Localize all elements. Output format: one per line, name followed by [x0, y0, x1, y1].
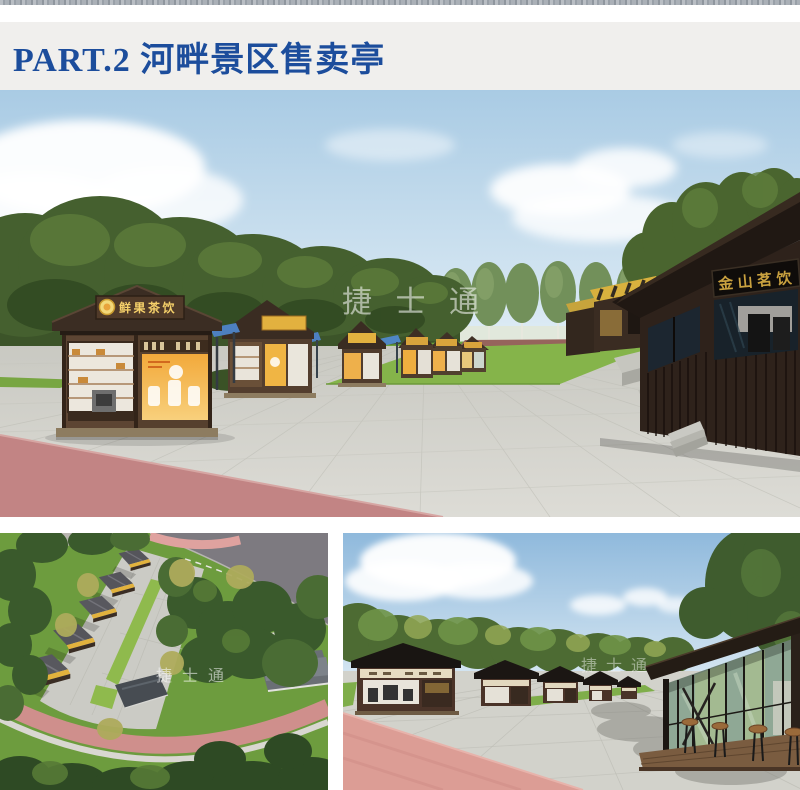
- page-title: PART.2 河畔景区售卖亭: [13, 32, 385, 81]
- plaza-render-image: 捷士通: [343, 533, 800, 790]
- main-render-image: 鲜果茶饮: [0, 90, 800, 517]
- kiosk-1-sign-text: 鲜果茶饮: [119, 300, 177, 315]
- watermark-main: 捷 士 通: [342, 286, 487, 319]
- page-top-texture-strip: [0, 0, 800, 5]
- watermark-aerial: 捷 士 通: [156, 667, 227, 685]
- bottom-image-row: 捷 士 通: [0, 533, 800, 790]
- image-gap: [328, 533, 343, 790]
- aerial-render-image: 捷 士 通: [0, 533, 328, 790]
- kiosk-1-signboard: 鲜果茶饮: [96, 296, 184, 319]
- section-header: PART.2 河畔景区售卖亭: [0, 22, 800, 90]
- watermark-plaza: 捷士通: [581, 657, 656, 675]
